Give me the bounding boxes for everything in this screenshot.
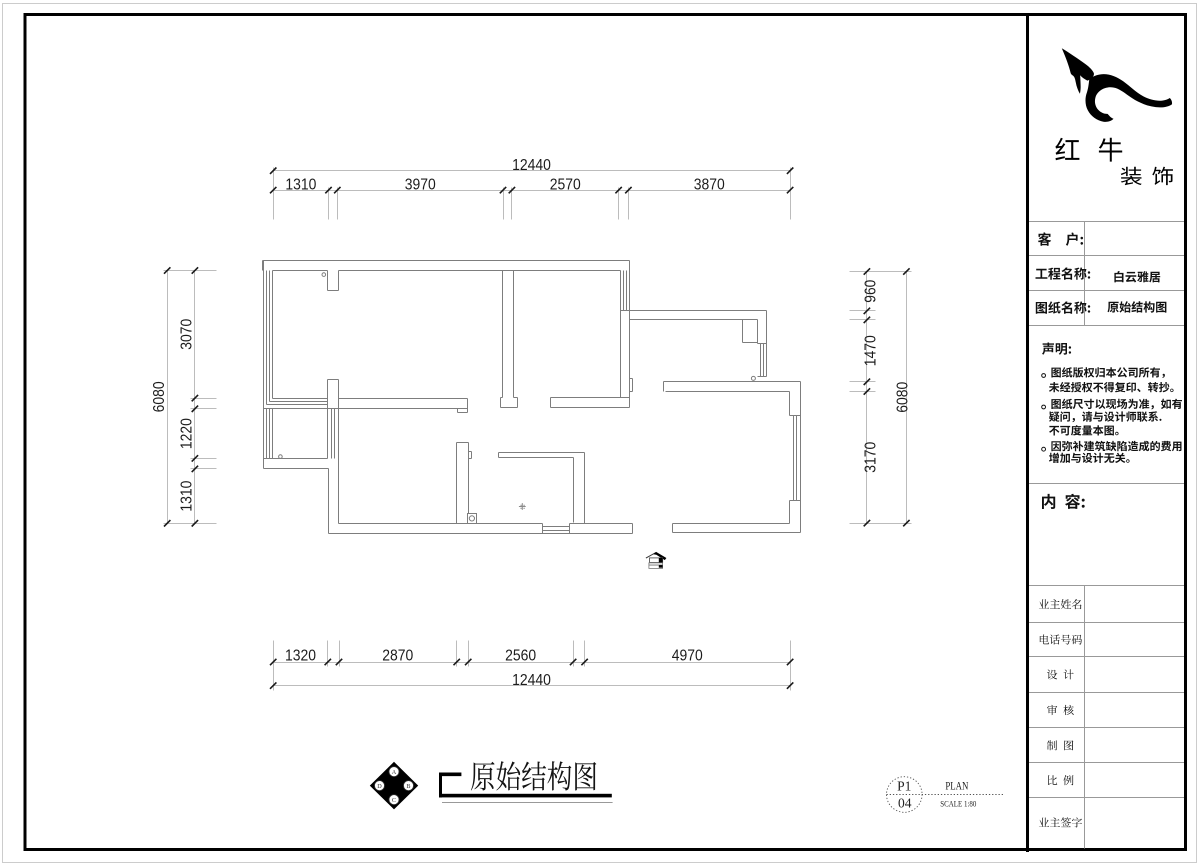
svg-text:1320: 1320 bbox=[285, 647, 316, 664]
svg-text:6080: 6080 bbox=[151, 381, 168, 412]
svg-text:2570: 2570 bbox=[550, 176, 581, 193]
svg-text:1310: 1310 bbox=[179, 481, 196, 512]
svg-text:A: A bbox=[392, 769, 397, 776]
svg-text:3170: 3170 bbox=[863, 442, 880, 473]
svg-text:3870: 3870 bbox=[694, 176, 725, 193]
svg-text:PLAN: PLAN bbox=[945, 778, 968, 792]
svg-text:1220: 1220 bbox=[179, 418, 196, 449]
svg-text:960: 960 bbox=[863, 280, 880, 303]
svg-text:4970: 4970 bbox=[672, 647, 703, 664]
svg-text:1310: 1310 bbox=[285, 176, 316, 193]
svg-text:P1: P1 bbox=[897, 778, 911, 793]
svg-text:6080: 6080 bbox=[895, 382, 912, 413]
svg-text:3970: 3970 bbox=[405, 176, 436, 193]
svg-text:2870: 2870 bbox=[382, 647, 413, 664]
svg-text:2560: 2560 bbox=[505, 647, 536, 664]
svg-text:1470: 1470 bbox=[863, 335, 880, 366]
svg-text:12440: 12440 bbox=[512, 157, 551, 174]
svg-text:3070: 3070 bbox=[179, 319, 196, 350]
svg-text:B: B bbox=[406, 783, 410, 790]
svg-text:C: C bbox=[392, 797, 396, 804]
svg-text:D: D bbox=[377, 783, 382, 790]
svg-text:12440: 12440 bbox=[512, 672, 551, 689]
svg-text:SCALE 1:80: SCALE 1:80 bbox=[940, 798, 976, 808]
svg-text:04: 04 bbox=[898, 796, 912, 811]
